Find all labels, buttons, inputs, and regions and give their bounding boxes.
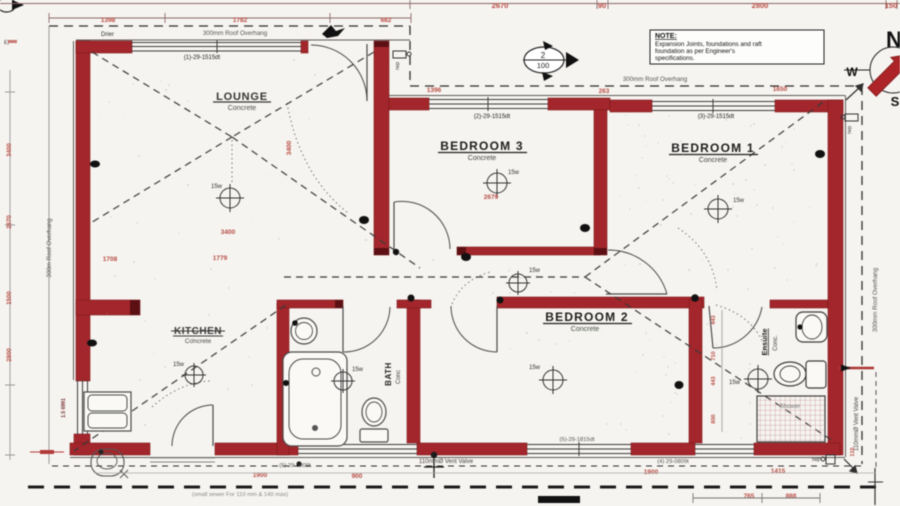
svg-text:15w: 15w xyxy=(352,367,364,373)
svg-text:15w: 15w xyxy=(529,365,541,371)
svg-text:100: 100 xyxy=(537,61,550,70)
svg-text:3400: 3400 xyxy=(221,229,236,236)
svg-text:2670: 2670 xyxy=(492,1,509,10)
svg-text:1500: 1500 xyxy=(7,291,13,305)
svg-text:Conc.: Conc. xyxy=(773,335,779,351)
svg-text:800: 800 xyxy=(711,414,717,423)
svg-text:15w: 15w xyxy=(529,268,541,274)
svg-text:1779: 1779 xyxy=(213,255,228,262)
svg-text:1708: 1708 xyxy=(103,256,118,263)
svg-text:300mm Roof Overhang: 300mm Roof Overhang xyxy=(623,76,688,83)
svg-text:110: 110 xyxy=(850,448,856,457)
svg-text:682: 682 xyxy=(381,17,392,24)
svg-text:BEDROOM 3: BEDROOM 3 xyxy=(440,139,523,153)
svg-text:765: 765 xyxy=(744,493,755,500)
svg-text:90: 90 xyxy=(598,1,606,10)
svg-text:15w: 15w xyxy=(733,198,745,204)
svg-text:(5)-29-1815dt: (5)-29-1815dt xyxy=(559,437,595,443)
svg-text:150: 150 xyxy=(885,1,898,10)
svg-text:rwp: rwp xyxy=(847,126,853,134)
svg-text:W: W xyxy=(846,65,858,79)
svg-text:Concrete: Concrete xyxy=(228,105,257,112)
svg-text:BEDROOM 2: BEDROOM 2 xyxy=(545,310,628,324)
svg-text:1398: 1398 xyxy=(101,17,116,24)
svg-text:(small sewer For 110 mm & 140: (small sewer For 110 mm & 140 max) xyxy=(192,492,288,498)
svg-text:Concrete: Concrete xyxy=(571,326,600,333)
svg-text:(5) 29-0809t: (5) 29-0809t xyxy=(279,463,311,469)
svg-text:15w: 15w xyxy=(173,362,185,368)
svg-text:15w: 15w xyxy=(729,380,741,386)
svg-text:263: 263 xyxy=(599,88,610,95)
svg-text:15w: 15w xyxy=(211,184,223,190)
svg-text:1900: 1900 xyxy=(644,469,659,476)
svg-text:2: 2 xyxy=(541,51,546,60)
svg-text:110mmØ Vent Valve: 110mmØ Vent Valve xyxy=(419,459,474,465)
svg-text:BATH: BATH xyxy=(384,362,393,386)
svg-text:KITCHEN: KITCHEN xyxy=(174,326,222,337)
svg-text:443: 443 xyxy=(711,376,717,385)
svg-text:2800: 2800 xyxy=(7,348,13,362)
svg-text:specifications.: specifications. xyxy=(655,55,695,62)
svg-text:BEDROOM 1: BEDROOM 1 xyxy=(671,141,754,155)
svg-text:1.5 6991: 1.5 6991 xyxy=(61,398,67,418)
svg-text:15w: 15w xyxy=(508,170,520,176)
svg-text:N: N xyxy=(886,27,900,52)
svg-text:2679: 2679 xyxy=(484,194,499,201)
svg-text:710: 710 xyxy=(711,351,717,360)
svg-text:3400: 3400 xyxy=(7,143,13,157)
svg-text:Concrete: Concrete xyxy=(185,338,212,345)
svg-text:900: 900 xyxy=(352,473,363,480)
svg-text:Conc: Conc xyxy=(396,370,402,384)
svg-text:300m Roof Overhang: 300m Roof Overhang xyxy=(46,218,53,278)
svg-text:2800: 2800 xyxy=(752,1,769,10)
svg-text:LOUNGE: LOUNGE xyxy=(216,91,268,103)
svg-text:Concrete: Concrete xyxy=(699,157,728,164)
svg-text:(4) 29-0809t: (4) 29-0809t xyxy=(657,459,689,465)
svg-text:Shower: Shower xyxy=(780,404,800,410)
svg-text:Concrete: Concrete xyxy=(468,155,497,162)
svg-text:rwp: rwp xyxy=(395,62,401,70)
svg-text:300mm Roof Overhang: 300mm Roof Overhang xyxy=(203,30,268,37)
svg-text:1396: 1396 xyxy=(427,87,442,94)
svg-text:2670: 2670 xyxy=(7,215,13,229)
svg-text:S: S xyxy=(891,94,900,109)
svg-text:443: 443 xyxy=(711,315,717,324)
svg-text:(3)-29-1515dt: (3)-29-1515dt xyxy=(698,114,735,120)
svg-text:3400: 3400 xyxy=(286,140,293,155)
svg-text:1650: 1650 xyxy=(773,86,788,93)
svg-text:Ensuite: Ensuite xyxy=(760,328,769,355)
svg-text:(2)-29-1515dt: (2)-29-1515dt xyxy=(474,114,511,120)
svg-text:1782: 1782 xyxy=(233,17,248,24)
svg-text:foundation as per Engineer's: foundation as per Engineer's xyxy=(655,48,735,55)
svg-text:rwp: rwp xyxy=(812,457,820,463)
svg-text:(1)-29-1515dt: (1)-29-1515dt xyxy=(184,55,221,61)
svg-text:110mmØ Vent Valve: 110mmØ Vent Valve xyxy=(854,396,860,451)
svg-text:Drier: Drier xyxy=(101,32,114,38)
svg-text:888: 888 xyxy=(786,493,797,500)
svg-text:Expansion Joints, foundations: Expansion Joints, foundations and raft xyxy=(655,41,762,48)
svg-text:NOTE:: NOTE: xyxy=(655,33,677,40)
svg-text:300mm Roof Overhang: 300mm Roof Overhang xyxy=(872,267,879,332)
svg-text:1415: 1415 xyxy=(771,468,786,475)
